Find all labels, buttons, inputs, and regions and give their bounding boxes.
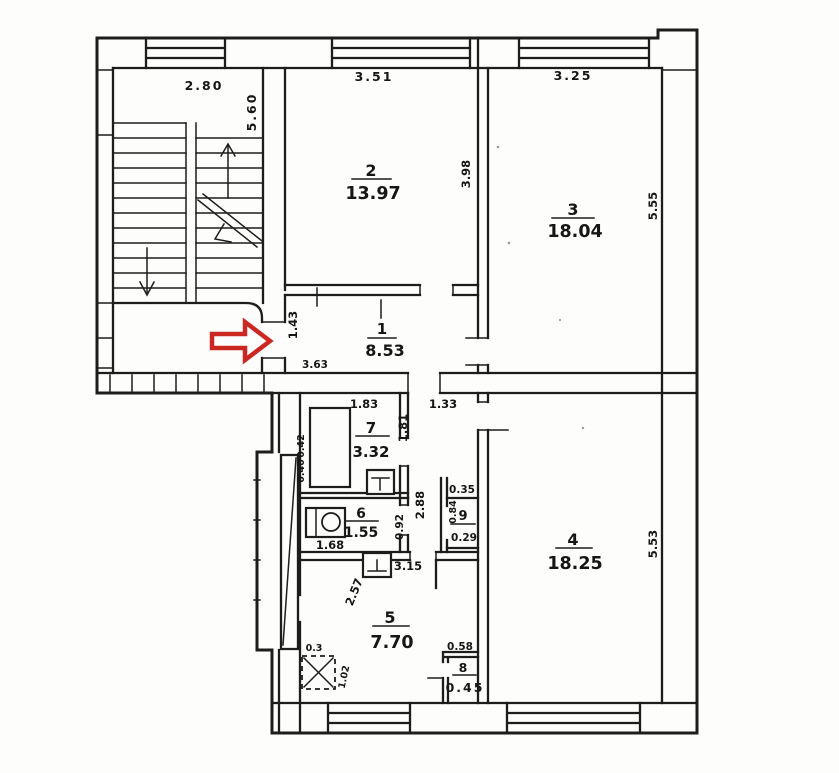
fraction-bars <box>346 179 594 675</box>
room2-number: 2 <box>365 161 376 180</box>
room6-number: 6 <box>356 506 366 522</box>
room6-area: 1.55 <box>344 525 379 541</box>
outer-perimeter-wall <box>97 30 697 733</box>
speck <box>497 146 500 149</box>
speck <box>559 319 561 321</box>
stove-cross-icon <box>304 658 333 687</box>
room7-number: 7 <box>366 419 376 437</box>
dim-room6-height: 0.92 <box>394 514 406 540</box>
speck <box>508 242 511 245</box>
window-room2 <box>332 38 470 68</box>
toilet-bowl-icon <box>322 513 340 531</box>
dim-room5-width: 3.15 <box>394 559 422 573</box>
dim-stair-height: 5.60 <box>244 93 259 132</box>
room3-door-jambs <box>466 338 488 365</box>
room7-right-wall <box>400 393 408 498</box>
room4-door-jambs <box>478 402 508 430</box>
stair-up-arrow <box>221 144 235 198</box>
room3-area: 18.04 <box>547 222 602 242</box>
room2-room1-wall <box>285 285 478 295</box>
dim-room3-height: 5.55 <box>646 192 660 220</box>
central-spine-wall-bottom <box>478 393 488 703</box>
staircase <box>113 68 285 373</box>
dim-stove-length: 1.02 <box>337 664 353 689</box>
room1-number: 1 <box>377 320 387 338</box>
dim-room7-height: 1.81 <box>396 414 410 442</box>
floorplan-page: 2.80 5.60 3.51 3.98 2 13.97 3.25 5.55 3 … <box>0 0 839 773</box>
middle-floor-band <box>97 373 697 393</box>
balcony <box>254 455 298 649</box>
room3-number: 3 <box>567 200 578 219</box>
room5-area: 7.70 <box>370 633 413 653</box>
window-room5 <box>328 703 410 733</box>
dim-corridor-height: 2.88 <box>413 491 427 519</box>
windows <box>146 38 649 733</box>
stair-break-diagonal <box>198 194 262 247</box>
stair-treads-left-flight <box>113 123 186 288</box>
stair-break-arrowhead <box>215 224 231 242</box>
dim-room2-width: 3.51 <box>355 69 394 84</box>
balcony-diagonal <box>283 458 296 645</box>
dim-room2-height: 3.98 <box>459 160 473 188</box>
room8-number: 8 <box>459 660 470 675</box>
stair-stringer <box>186 123 196 303</box>
red-entrance-arrow <box>212 322 270 360</box>
scan-noise <box>497 146 585 430</box>
room2-area: 13.97 <box>345 184 400 204</box>
dim-stove-side: 0.3 <box>306 643 323 654</box>
right-wall-ticks <box>662 70 697 703</box>
dim-room4-height: 5.53 <box>646 530 660 558</box>
dim-hall-width: 1.33 <box>429 397 457 411</box>
dim-stair-width: 2.80 <box>185 78 224 93</box>
dim-room9-height: 0.84 <box>448 500 459 524</box>
dim-room5-height: 2.57 <box>342 576 366 608</box>
dim-room1-height: 1.43 <box>286 311 300 339</box>
window-stairs <box>146 38 225 68</box>
corridor-room9-wall <box>441 478 447 552</box>
band-jambs <box>408 373 440 393</box>
left-wall-ticks <box>97 70 113 368</box>
room4-number: 4 <box>567 530 578 549</box>
stair-treads-right-flight <box>196 138 263 288</box>
room4-area: 18.25 <box>547 554 602 574</box>
room7-area: 3.32 <box>352 443 389 461</box>
central-spine-wall-top <box>478 38 488 373</box>
room9-number: 9 <box>458 509 467 524</box>
room8-area: 0.45 <box>446 680 485 695</box>
dim-room8-width: 0.58 <box>447 641 473 653</box>
dim-niche-bottom: 0.40 <box>296 459 307 483</box>
room1-area: 8.53 <box>365 341 404 360</box>
floorplan-canvas: 2.80 5.60 3.51 3.98 2 13.97 3.25 5.55 3 … <box>0 0 839 773</box>
band-hatching <box>110 375 264 391</box>
room5-number: 5 <box>384 608 395 627</box>
window-room3 <box>519 38 649 68</box>
closet-room7 <box>310 408 350 487</box>
outer-walls <box>97 30 697 733</box>
dim-room9-width: 0.35 <box>449 484 475 496</box>
room9-area: 0.29 <box>451 532 477 544</box>
dim-niche-top: 0.42 <box>296 434 307 457</box>
dim-room1-width: 3.63 <box>302 359 328 371</box>
dim-room6-width: 1.68 <box>316 538 344 552</box>
speck <box>582 427 584 429</box>
window-room4 <box>507 703 640 733</box>
dim-room7-width: 1.83 <box>350 397 378 411</box>
dim-room3-width: 3.25 <box>554 68 593 83</box>
